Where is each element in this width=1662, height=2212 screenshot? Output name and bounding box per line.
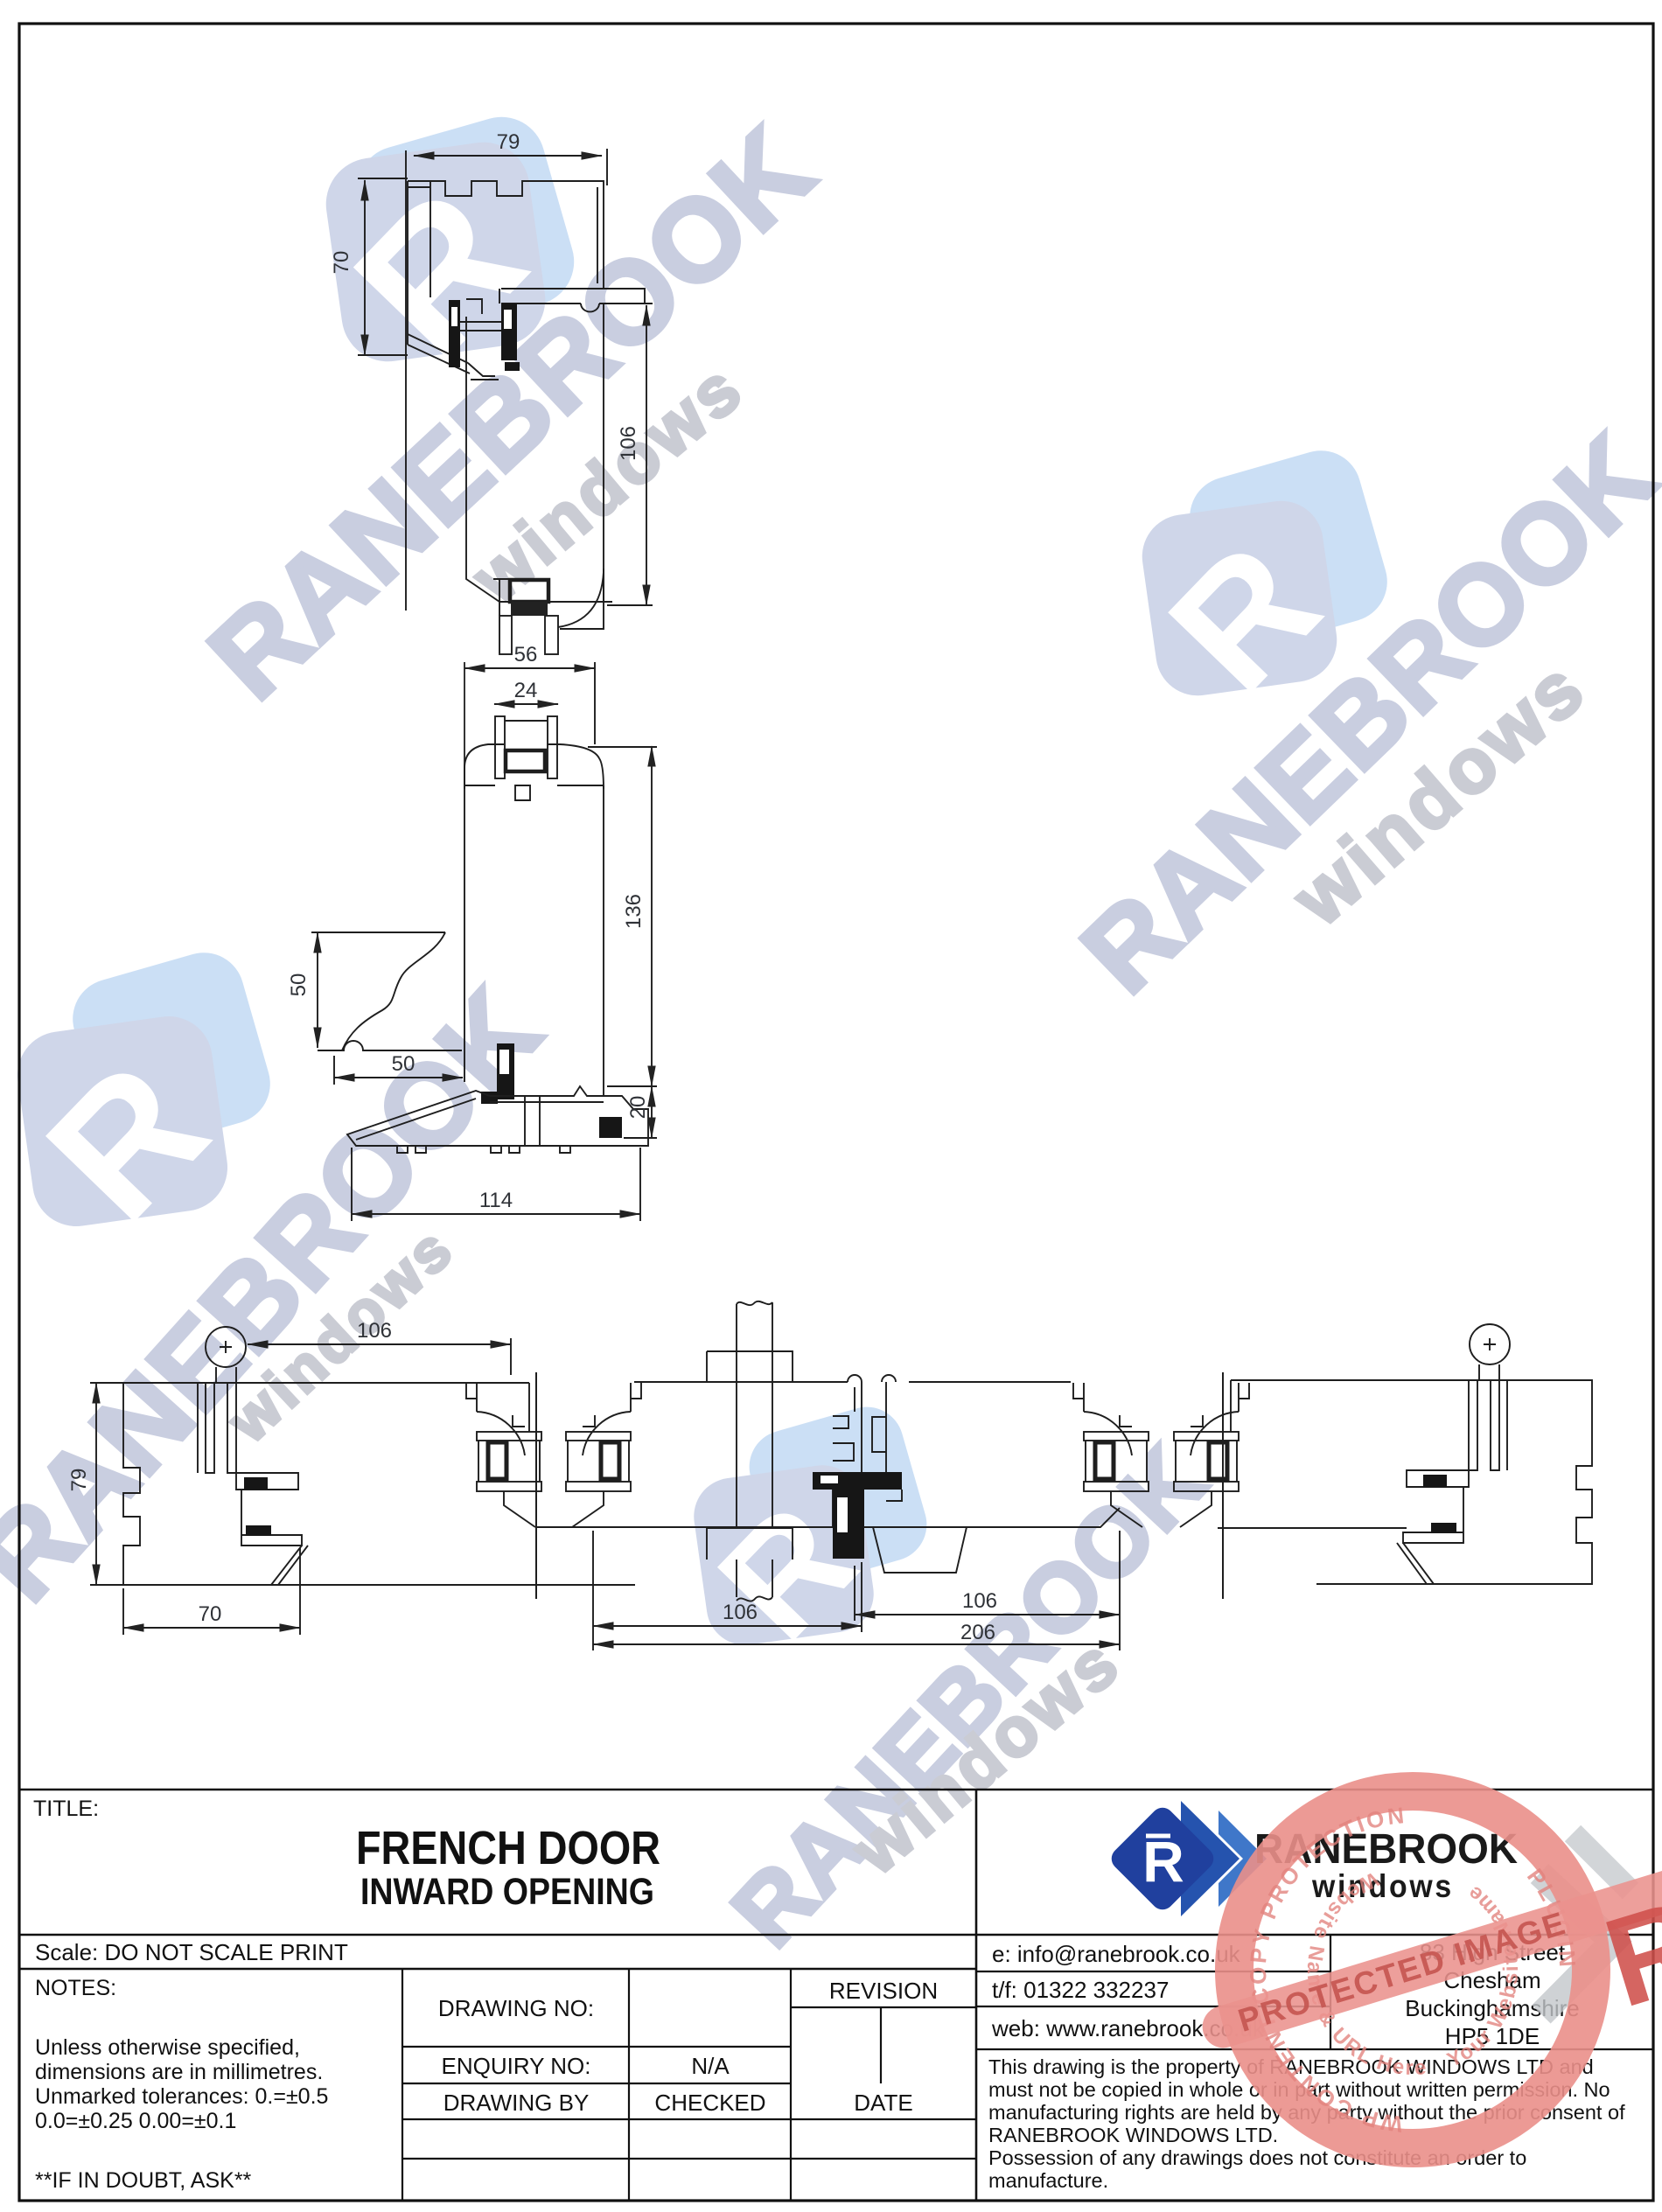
svg-text:24: 24 xyxy=(514,679,538,702)
svg-text:Unless otherwise specified,: Unless otherwise specified, xyxy=(35,2035,300,2060)
svg-text:106: 106 xyxy=(357,1319,392,1343)
svg-text:INWARD OPENING: INWARD OPENING xyxy=(360,1871,654,1913)
svg-text:20: 20 xyxy=(626,1096,650,1120)
svg-text:REVISION: REVISION xyxy=(829,1978,938,2004)
svg-text:manufacture.: manufacture. xyxy=(988,2169,1108,2192)
svg-text:NOTES:: NOTES: xyxy=(35,1976,116,2000)
svg-text:106: 106 xyxy=(962,1589,997,1613)
svg-text:0.0=±0.25 0.00=±0.1: 0.0=±0.25 0.00=±0.1 xyxy=(35,2109,236,2133)
svg-text:114: 114 xyxy=(479,1189,513,1212)
svg-text:70: 70 xyxy=(199,1602,222,1626)
svg-text:DATE: DATE xyxy=(854,2090,912,2116)
svg-text:Unmarked tolerances: 0.=±0.5: Unmarked tolerances: 0.=±0.5 xyxy=(35,2084,328,2109)
svg-text:N/A: N/A xyxy=(691,2053,730,2079)
svg-text:**IF IN DOUBT, ASK**: **IF IN DOUBT, ASK** xyxy=(35,2168,252,2193)
svg-text:dimensions are in millimetres.: dimensions are in millimetres. xyxy=(35,2060,323,2084)
svg-text:206: 206 xyxy=(960,1621,995,1644)
svg-text:RANEBROOK WINDOWS LTD.: RANEBROOK WINDOWS LTD. xyxy=(988,2124,1278,2146)
svg-text:50: 50 xyxy=(287,973,311,997)
svg-text:t/f: 01322 332237: t/f: 01322 332237 xyxy=(992,1977,1169,2003)
svg-text:R: R xyxy=(1142,1829,1184,1894)
svg-text:50: 50 xyxy=(392,1052,415,1076)
svg-text:windows: windows xyxy=(1311,1868,1454,1904)
svg-text:106: 106 xyxy=(617,426,640,461)
svg-text:79: 79 xyxy=(497,130,520,154)
svg-text:Scale: DO NOT SCALE PRINT: Scale: DO NOT SCALE PRINT xyxy=(35,1939,348,1965)
svg-text:FRENCH DOOR: FRENCH DOOR xyxy=(356,1822,660,1874)
svg-text:79: 79 xyxy=(67,1469,91,1492)
svg-text:TITLE:: TITLE: xyxy=(33,1797,99,1821)
svg-text:ENQUIRY NO:: ENQUIRY NO: xyxy=(442,2053,591,2079)
svg-text:70: 70 xyxy=(330,251,353,275)
svg-text:CHECKED: CHECKED xyxy=(654,2090,765,2116)
svg-text:106: 106 xyxy=(723,1601,758,1624)
svg-text:DRAWING NO:: DRAWING NO: xyxy=(438,1995,594,2021)
svg-text:DRAWING BY: DRAWING BY xyxy=(443,2090,590,2116)
svg-text:56: 56 xyxy=(514,643,538,666)
svg-text:e: info@ranebrook.co.uk: e: info@ranebrook.co.uk xyxy=(992,1941,1241,1967)
svg-text:136: 136 xyxy=(622,894,646,929)
